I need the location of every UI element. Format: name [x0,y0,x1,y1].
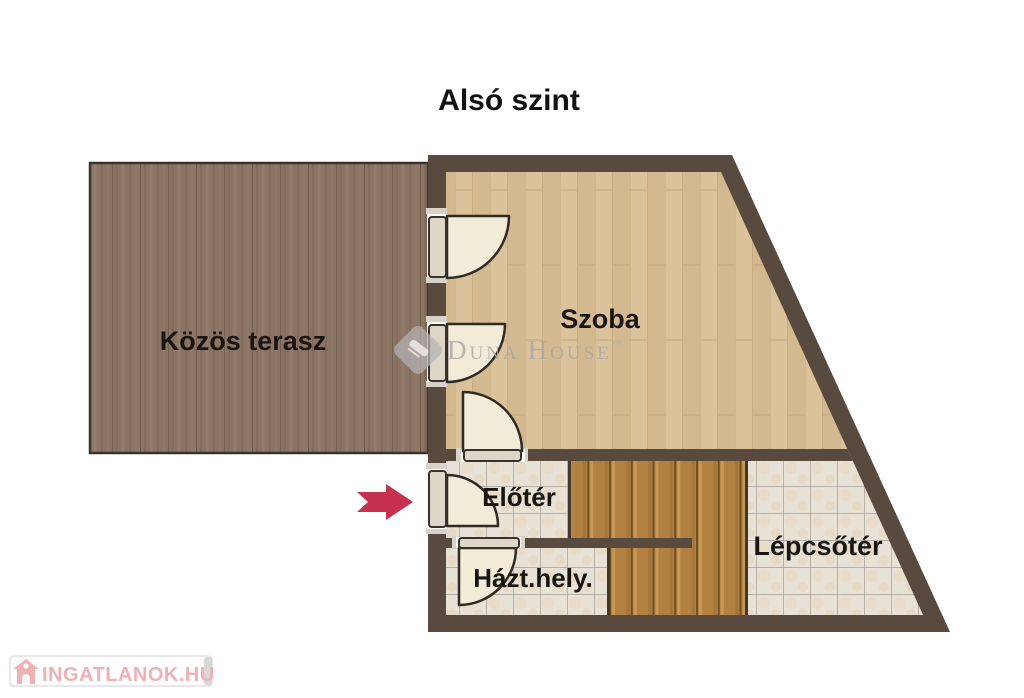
divider [745,461,748,615]
door-frame-tab [426,463,447,469]
room-label-terrace: Közös terasz [160,326,327,356]
floor-plan: Alsó szint Közös terasz [0,0,1024,698]
brand-site-name: INGATLANOK.HU [42,664,215,686]
stairs-upper [571,461,745,538]
room-terrace: Közös terasz [90,163,428,453]
divider [568,461,571,538]
door-leaf [429,471,446,527]
door-frame-tab [426,316,447,322]
wall-mid [523,538,692,548]
room-label-lepcsoter: Lépcsőtér [753,531,883,561]
divider [607,548,610,615]
stairs-turn [692,538,745,548]
room-label-eloter: Előtér [482,482,556,512]
door-frame-tab [426,208,447,214]
terrace-floor [90,163,428,453]
entrance-arrow-icon [357,484,413,520]
floor-plan-page: Alsó szint Közös terasz [0,0,1024,698]
door-leaf [459,538,519,548]
door-leaf [464,450,521,461]
stairs-lower [610,548,745,615]
door-leaf [429,217,446,277]
ingatlanok-badge: INGATLANOK.HU [10,656,215,686]
room-label-hazthely: Házt.hely. [473,563,592,593]
page-title: Alsó szint [438,84,580,117]
room-label-szoba: Szoba [560,304,640,334]
